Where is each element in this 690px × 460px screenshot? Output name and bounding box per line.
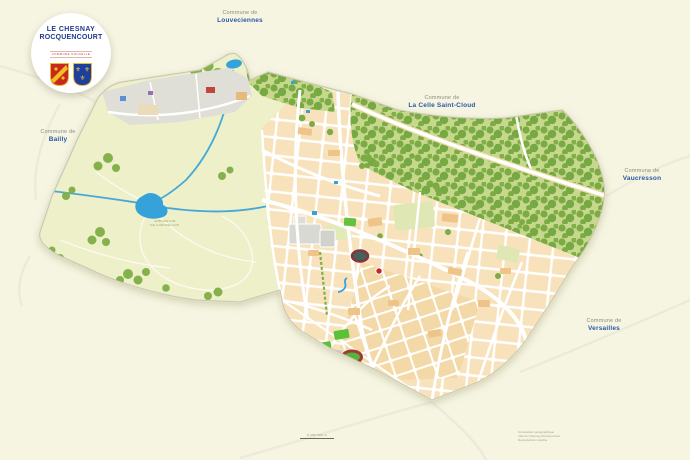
coats-of-arms: ⚜ ⚜ ⚜ (31, 63, 111, 86)
road-label-mark (268, 54, 274, 57)
map-credits: Conception cartographique Ville du Chesn… (518, 430, 570, 442)
scale-label: 0 250 500 m (294, 433, 340, 437)
svg-text:⚜: ⚜ (75, 66, 81, 74)
red-marker (376, 268, 382, 274)
scale-bar: 0 250 500 m (294, 433, 340, 439)
neighbor-prefix: Commune de (624, 168, 659, 174)
svg-text:⚜: ⚜ (84, 66, 90, 74)
road-label-mark-2 (281, 57, 286, 59)
neighbor-prefix: Commune de (40, 129, 75, 135)
stadium-north (352, 251, 368, 262)
logo-title-line2: ROCQUENCOURT (31, 34, 111, 42)
rocquencourt-shield-icon: ⚜ ⚜ ⚜ (73, 63, 92, 86)
neighbor-label-versailles: Commune de Versailles (576, 318, 632, 332)
chesnay-shield-icon (50, 63, 69, 86)
scale-line (300, 438, 334, 439)
logo-title-line1: LE CHESNAY (31, 26, 111, 34)
neighbor-name: Louveciennes (198, 17, 282, 24)
neighbor-prefix: Commune de (586, 318, 621, 324)
map-stage: LE CHESNAY ROCQUENCOURT COMMUNE NOUVELLE… (0, 0, 690, 460)
neighbor-label-bailly: Commune de Bailly (30, 129, 86, 143)
logo-tagline: COMMUNE NOUVELLE (50, 51, 92, 58)
neighbor-prefix: Commune de (424, 95, 459, 101)
neighbor-name: La Celle Saint-Cloud (398, 102, 486, 109)
arboretum-label: ARBORETUM DE CHÈVRELOUP (138, 220, 192, 227)
neighbor-name: Versailles (576, 325, 632, 332)
neighbor-label-louveciennes: Commune de Louveciennes (198, 10, 282, 24)
neighbor-label-la-celle-saint-cloud: Commune de La Celle Saint-Cloud (398, 95, 486, 109)
commune-logo: LE CHESNAY ROCQUENCOURT COMMUNE NOUVELLE… (31, 13, 111, 93)
svg-text:⚜: ⚜ (80, 74, 86, 82)
credit-line: Reproduction interdite (518, 438, 570, 442)
neighbor-name: Vaucresson (612, 175, 672, 182)
neighbor-name: Bailly (30, 136, 86, 143)
neighbor-label-vaucresson: Commune de Vaucresson (612, 168, 672, 182)
neighbor-prefix: Commune de (222, 10, 257, 16)
